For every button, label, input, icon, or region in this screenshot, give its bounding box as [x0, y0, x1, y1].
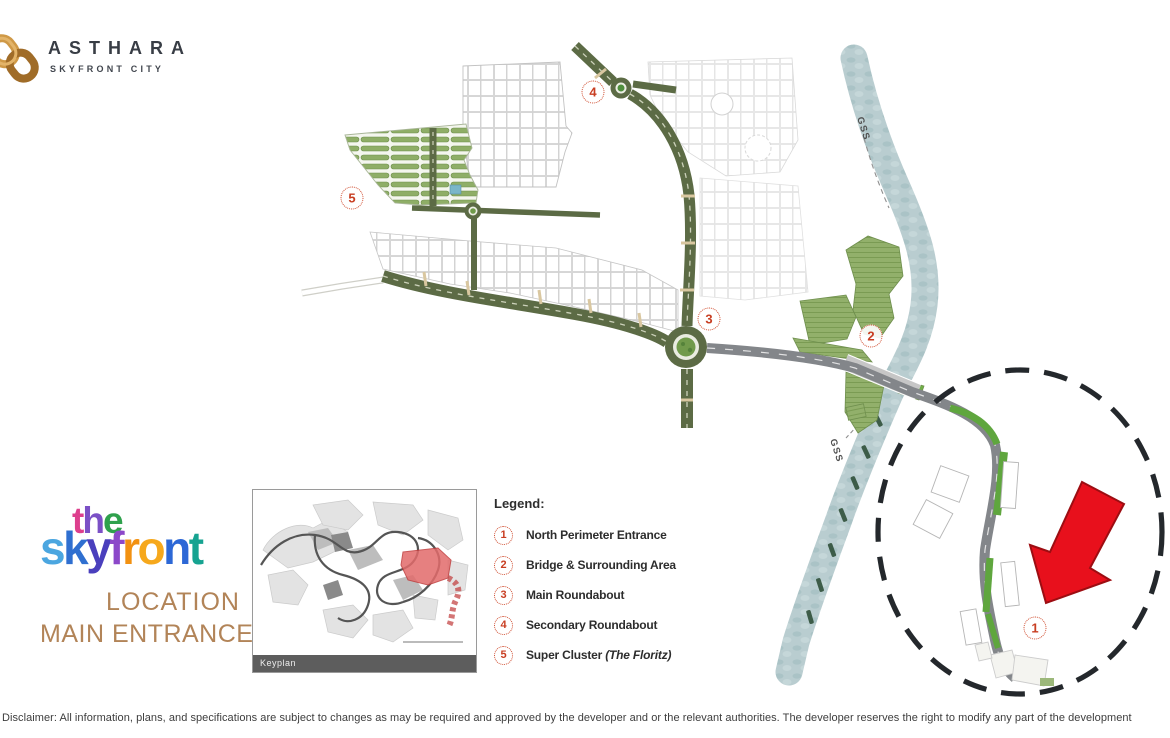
logo-letter: o [138, 522, 164, 574]
legend-item-label: North Perimeter Entrance [526, 528, 667, 542]
legend-item-label-note: (The Floritz) [605, 648, 671, 662]
legend-marker-1: 1 [494, 526, 513, 545]
legend-marker-3: 3 [494, 586, 513, 605]
legend-item-5: 5 Super Cluster (The Floritz) [494, 640, 714, 670]
brand-name: ASTHARA [48, 38, 192, 59]
logo-letter: s [40, 522, 63, 574]
legend-item-2: 2 Bridge & Surrounding Area [494, 550, 714, 580]
logo-letter: r [122, 522, 137, 574]
legend-marker-4: 4 [494, 616, 513, 635]
legend-item-3: 3 Main Roundabout [494, 580, 714, 610]
map-marker-1: 1 [1024, 617, 1047, 640]
subtitle-main-entrance: MAIN ENTRANCE [40, 620, 253, 649]
logo-letter: n [163, 522, 189, 574]
legend-item-label-text: Super Cluster [526, 648, 605, 662]
legend-item-4: 4 Secondary Roundabout [494, 610, 714, 640]
legend-title: Legend: [494, 496, 714, 511]
faint-road-stub [302, 280, 383, 293]
legend-marker-2: 2 [494, 556, 513, 575]
logo-skyfront: skyfront [40, 525, 202, 571]
main-entrance-arrow [1030, 482, 1124, 603]
map-marker-3: 3 [698, 308, 721, 331]
disclaimer-text: Disclaimer: All information, plans, and … [2, 712, 1170, 724]
river-label-gss-south: GSS [827, 438, 845, 465]
legend: Legend: 1 North Perimeter Entrance 2 Bri… [494, 496, 714, 670]
brand-tagline: SKYFRONT CITY [50, 64, 164, 74]
logo-letter: f [109, 522, 122, 574]
legend-marker-5: 5 [494, 646, 513, 665]
legend-item-label: Main Roundabout [526, 588, 624, 602]
subtitle-location: LOCATION [106, 588, 240, 617]
logo-letter: t [189, 522, 202, 574]
keyplan-inset: Keyplan [252, 489, 477, 673]
keyplan-caption: Keyplan [253, 655, 476, 672]
legend-item-label: Secondary Roundabout [526, 618, 657, 632]
chain-link-icon [0, 30, 40, 90]
project-logo-block: the skyfront LOCATION MAIN ENTRANCE [40, 502, 240, 652]
map-marker-2: 2 [860, 325, 883, 348]
map-marker-4: 4 [582, 81, 605, 104]
brand-logo: ASTHARA SKYFRONT CITY [0, 28, 260, 98]
legend-item-1: 1 North Perimeter Entrance [494, 520, 714, 550]
legend-item-label: Super Cluster (The Floritz) [526, 648, 671, 662]
logo-letter: y [86, 522, 109, 574]
map-marker-5: 5 [341, 187, 364, 210]
highlight-dashed-circle [878, 370, 1162, 694]
logo-letter: k [63, 522, 86, 574]
keyplan-map [253, 490, 476, 655]
legend-item-label: Bridge & Surrounding Area [526, 558, 676, 572]
slide: { "brand": { "name": "ASTHARA", "tagline… [0, 0, 1170, 738]
